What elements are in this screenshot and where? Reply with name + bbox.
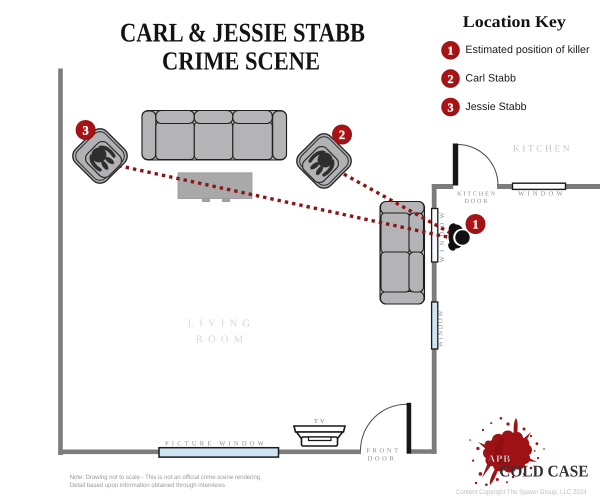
svg-text:Location Key: Location Key — [463, 12, 567, 31]
svg-text:Jessie Stabb: Jessie Stabb — [465, 101, 526, 113]
svg-text:CARL & JESSIE STABB: CARL & JESSIE STABB — [120, 18, 365, 48]
svg-text:KITCHEN: KITCHEN — [513, 145, 572, 155]
svg-text:Estimated position of killer: Estimated position of killer — [465, 44, 590, 56]
svg-text:TV: TV — [314, 418, 327, 425]
svg-text:1: 1 — [448, 44, 454, 58]
svg-text:2: 2 — [339, 128, 345, 142]
svg-text:1: 1 — [472, 218, 478, 232]
svg-text:WINDOW: WINDOW — [518, 191, 566, 198]
svg-text:LIVING: LIVING — [188, 319, 255, 330]
svg-text:3: 3 — [82, 124, 88, 138]
svg-text:DOOR: DOOR — [368, 456, 397, 463]
svg-text:ROOM: ROOM — [196, 335, 248, 346]
svg-text:COLD CASE: COLD CASE — [499, 462, 588, 481]
svg-text:DOOR: DOOR — [464, 198, 489, 205]
svg-text:Content Copyright The Spawn Gr: Content Copyright The Spawn Group, LLC 2… — [456, 489, 587, 496]
svg-text:WINDOW: WINDOW — [437, 309, 444, 347]
svg-text:3: 3 — [448, 100, 454, 114]
svg-text:FRONT: FRONT — [366, 448, 400, 455]
svg-text:CRIME SCENE: CRIME SCENE — [162, 47, 320, 76]
svg-text:2: 2 — [448, 72, 454, 86]
svg-text:Detail based upon information: Detail based upon information obtained t… — [70, 482, 225, 489]
svg-text:KITCHEN: KITCHEN — [457, 191, 497, 198]
svg-text:Carl Stabb: Carl Stabb — [465, 73, 516, 85]
svg-text:Note: Drawing not to scale - T: Note: Drawing not to scale - This is not… — [70, 474, 262, 481]
svg-text:PICTURE WINDOW: PICTURE WINDOW — [165, 441, 267, 448]
